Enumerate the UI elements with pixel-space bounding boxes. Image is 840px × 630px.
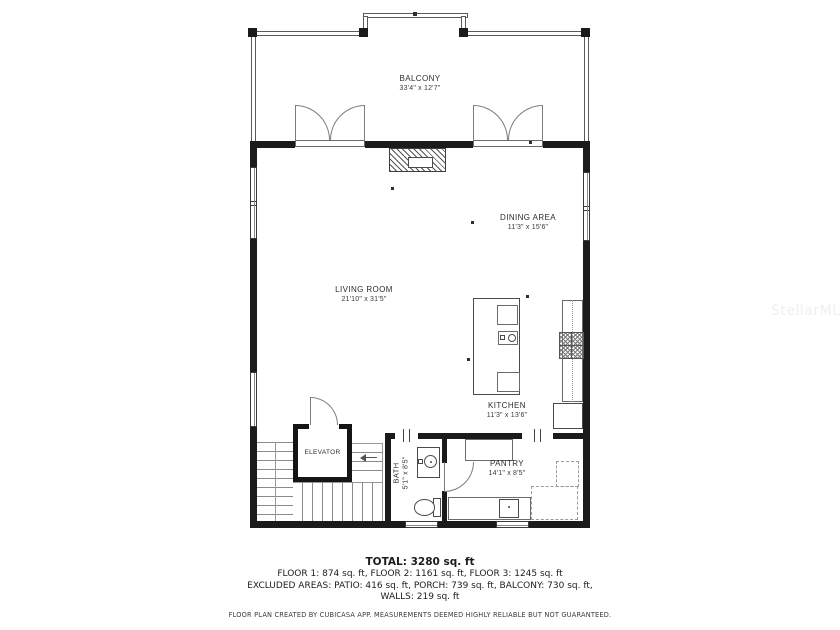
room-name: BALCONY [340,74,500,84]
pantry-upper-cabinet-dashed [531,486,578,520]
room-label-dining: DINING AREA 11'3" x 15'6" [458,213,598,232]
exterior-wall-top [365,141,473,148]
toilet-bowl [414,499,435,516]
floor-plan-page: BALCONY 33'4" x 12'7" DINING AREA 11'3" … [0,0,840,630]
room-dims: 11'3" x 13'6" [437,411,577,420]
room-label-balcony: BALCONY 33'4" x 12'7" [340,74,500,93]
summary-disclaimer: FLOOR PLAN CREATED BY CUBICASA APP. MEAS… [0,611,840,620]
room-name: BATH [392,431,402,515]
measure-tick [413,12,417,16]
stair-boundary [352,443,383,444]
window-divider [584,206,589,211]
french-door-leaf-arc [473,105,508,140]
room-dims: 14'1" x 8'5" [437,469,577,478]
stair-tread [342,482,343,521]
room-name: DINING AREA [458,213,598,223]
opening-tick [540,429,541,442]
window [496,521,529,528]
fireplace-insert [408,157,433,168]
exterior-wall-left [250,141,257,167]
stair-tread [312,482,313,521]
room-label-pantry: PANTRY 14'1" x 8'5" [437,459,577,478]
room-name: KITCHEN [437,401,577,411]
bath-sink-drain [430,461,432,463]
window [250,167,257,239]
balcony-corner-post [581,28,590,37]
room-dims: 5'1" x 8'5" [402,431,411,515]
interior-wall-bath-right [442,491,447,521]
stove-burner [571,345,584,359]
stair-tread [362,482,363,521]
pantry-sink [499,499,519,518]
island-cooktop-cabinet [497,305,518,325]
room-label-bath: BATH 5'1" x 8'5" [392,431,411,515]
room-dims: 21'10" x 31'5" [294,295,434,304]
opening-tick [534,429,535,442]
stair-rail [275,442,276,521]
stair-tread [322,482,323,521]
exterior-wall-right [583,141,590,172]
french-door-leaf-arc [330,105,365,140]
room-name: LIVING ROOM [294,285,434,295]
balcony-rail-top-right [466,31,585,36]
stair-tread [352,482,353,521]
french-door-threshold [295,140,365,147]
exterior-wall-bottom [438,521,496,528]
pantry-cabinet [465,439,513,461]
balcony-corner-post [359,28,368,37]
balcony-rail-right [584,34,589,142]
summary-total: TOTAL: 3280 sq. ft [0,556,840,569]
summary-floors: FLOOR 1: 874 sq. ft, FLOOR 2: 1161 sq. f… [0,569,840,581]
stair-tread [302,482,303,521]
island-cabinet [497,372,520,392]
room-dims: 11'3" x 15'6" [458,223,598,232]
island-faucet [500,335,505,340]
summary-walls: WALLS: 219 sq. ft [0,592,840,604]
balcony-corner-post [459,28,468,37]
exterior-wall-left [250,239,257,372]
stair-rail [382,443,383,521]
balcony-rail-top-left [255,31,363,36]
balcony-rail-left [251,34,256,142]
island-sink [508,334,516,342]
summary-block: TOTAL: 3280 sq. ft FLOOR 1: 874 sq. ft, … [0,556,840,620]
stove-burner [571,332,584,346]
stair-tread [352,452,383,453]
french-door-leaf-arc [508,105,543,140]
balcony-corner-post [248,28,257,37]
measure-tick [526,295,529,298]
stair-direction-arrow-icon [356,454,366,462]
exterior-wall-bottom [529,521,590,528]
exterior-wall-right [583,241,590,528]
french-door-threshold [473,140,543,147]
interior-wall-bath-left [385,433,391,528]
window [250,372,257,427]
room-dims: 33'4" x 12'7" [340,84,500,93]
interior-wall [553,433,583,439]
stair-tread [372,482,373,521]
pantry-sink-drain [508,506,510,508]
elevator-door-arc [310,397,338,425]
window [405,521,438,528]
stair-tread [332,482,333,521]
room-label-elevator: ELEVATOR [296,449,349,457]
measure-tick [391,187,394,190]
measure-tick [467,358,470,361]
stellar-mls-watermark: StellarMLS [771,303,840,319]
exterior-wall-left [250,427,257,528]
summary-excluded: EXCLUDED AREAS: PATIO: 416 sq. ft, PORCH… [0,581,840,593]
bath-faucet [418,459,423,464]
room-label-living: LIVING ROOM 21'10" x 31'5" [294,285,434,304]
stair-tread [352,470,383,471]
room-label-kitchen: KITCHEN 11'3" x 13'6" [437,401,577,420]
measure-tick [529,141,532,144]
exterior-wall-bottom [250,521,405,528]
stair-boundary [293,482,383,483]
french-door-leaf-arc [295,105,330,140]
room-name: PANTRY [437,459,577,469]
window-divider [251,201,256,206]
